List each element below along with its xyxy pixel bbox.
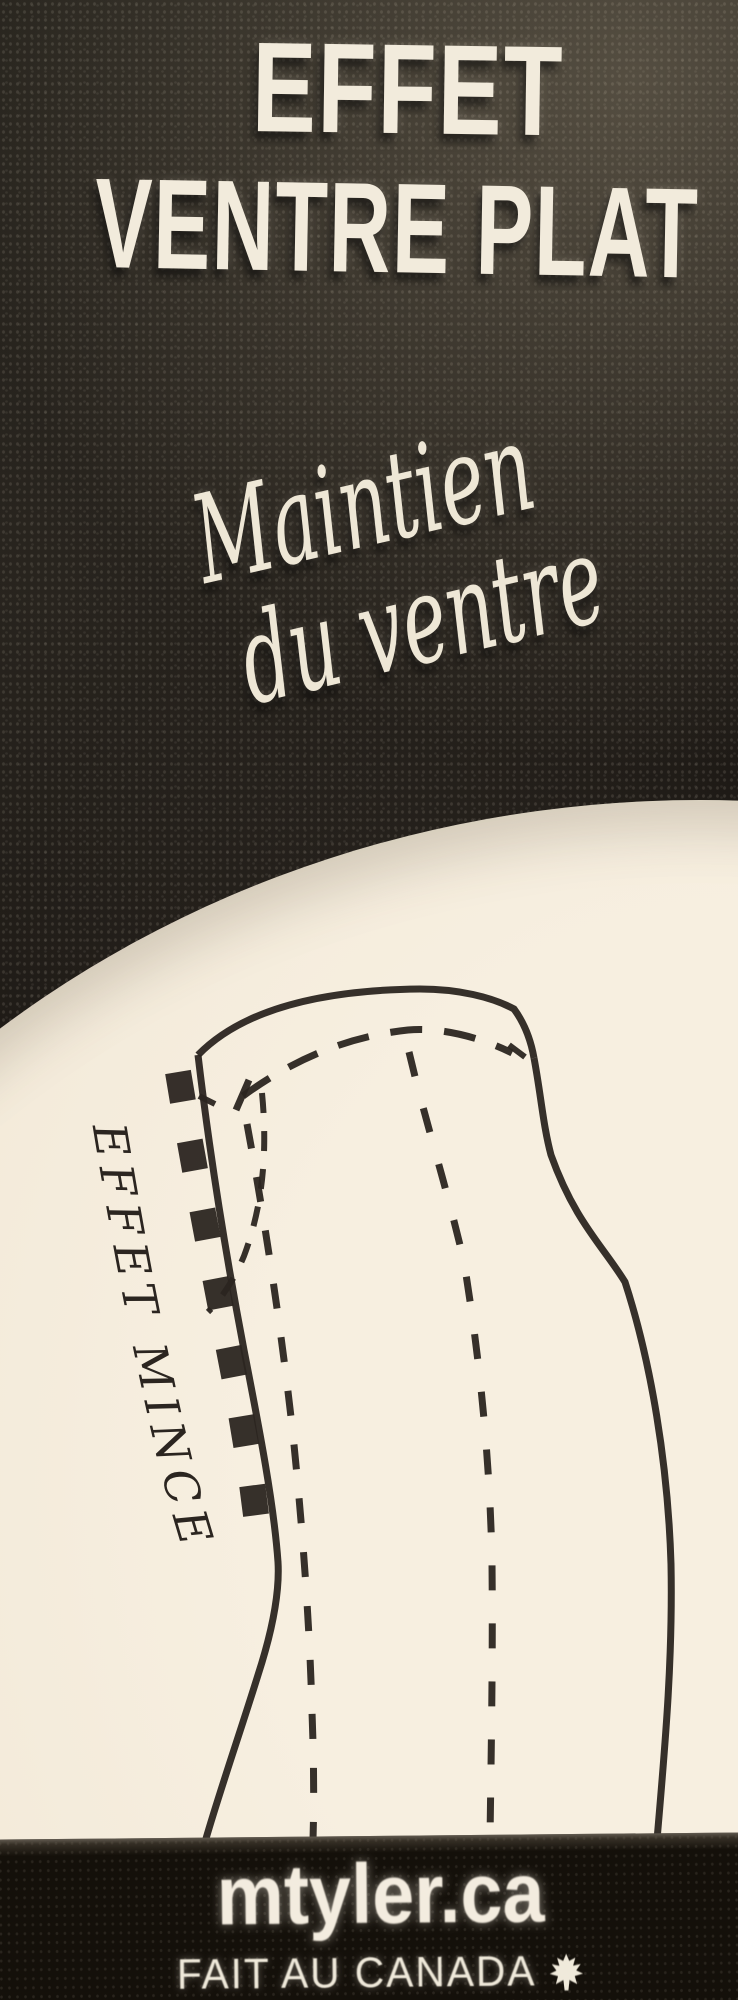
made-in-text: FAIT AU CANADA xyxy=(177,1950,537,1996)
pants-left-seam-line xyxy=(198,1055,278,1842)
inner-panel-dashed-line xyxy=(247,1124,314,1840)
diagram-annotation-textpath: EFFET MINCEUR xyxy=(0,0,226,1558)
pants-diagram: EFFET MINCEUR xyxy=(0,0,738,2000)
diagram-annotation-text: EFFET MINCEUR xyxy=(0,0,226,1558)
hang-tag-photo: EFFET VENTRE PLAT Maintien du ventre xyxy=(0,0,738,2000)
website-text: mtyler.ca xyxy=(216,1850,545,1937)
maple-leaf-icon xyxy=(548,1951,586,1991)
pants-right-seam-line xyxy=(534,1058,671,1840)
pants-waistband-line xyxy=(198,989,534,1058)
waistband-stitch-dashed-line xyxy=(243,1030,512,1096)
made-in-row: FAIT AU CANADA xyxy=(177,1950,586,1997)
footer-bar: mtyler.ca FAIT AU CANADA xyxy=(0,1832,738,2000)
crease-dashed-line xyxy=(409,1052,492,1840)
